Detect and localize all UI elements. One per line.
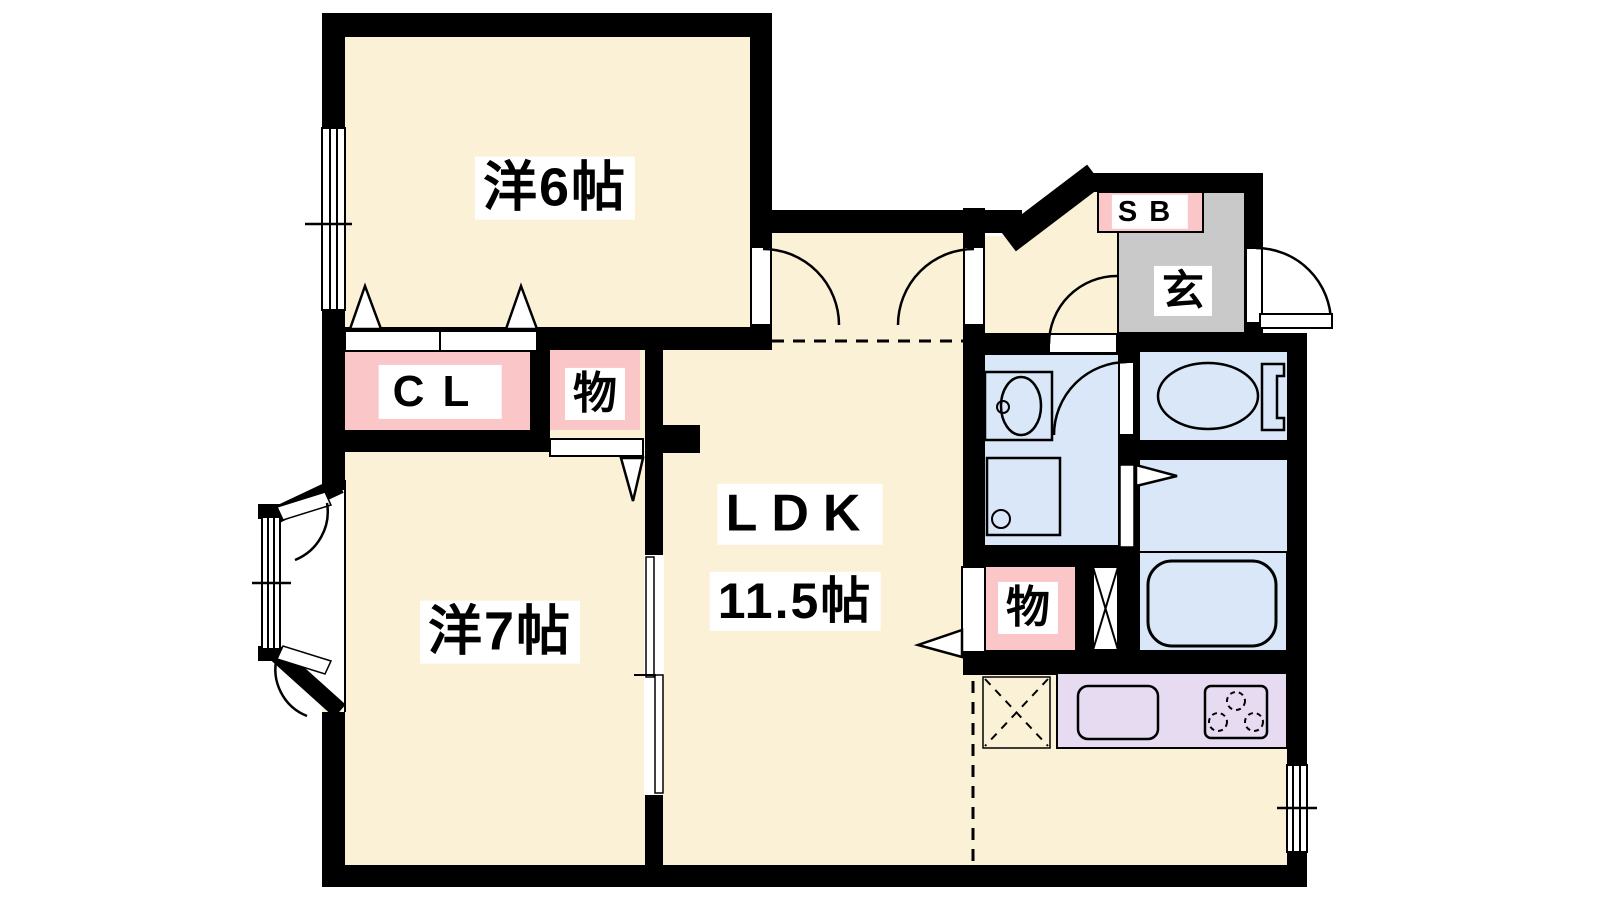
floor-plan: 洋6帖 CL 物 洋7帖 LDK 11.5帖 物 玄 SB	[0, 0, 1600, 900]
bedroom6-door	[751, 247, 771, 325]
closet-label: CL	[379, 365, 502, 419]
bay-window	[252, 480, 345, 716]
bedroom6-window	[322, 128, 345, 310]
floor-plan-drawing	[0, 0, 1600, 900]
storage-top-label: 物	[565, 368, 625, 420]
entrance-door	[1246, 248, 1332, 328]
refrigerator-space	[983, 677, 1050, 748]
bedroom7-label: 洋7帖	[420, 601, 580, 664]
storage-bottom-label: 物	[998, 582, 1058, 634]
pipe-space	[1093, 567, 1118, 650]
bath-door	[1120, 465, 1134, 547]
storage-top-door	[550, 439, 643, 456]
ldk-label: LDK	[718, 484, 883, 545]
kitchen-counter	[1057, 673, 1287, 748]
toilet-door	[1119, 362, 1134, 435]
ldk-size-label: 11.5帖	[710, 572, 881, 631]
closet-door	[345, 331, 440, 351]
storage-bottom-door	[962, 567, 985, 652]
bedroom6-label: 洋6帖	[475, 157, 635, 220]
washroom-door	[1049, 334, 1117, 353]
shoe-box-label: SB	[1112, 195, 1188, 229]
entrance-label: 玄	[1154, 266, 1212, 316]
hall-door	[964, 247, 984, 325]
